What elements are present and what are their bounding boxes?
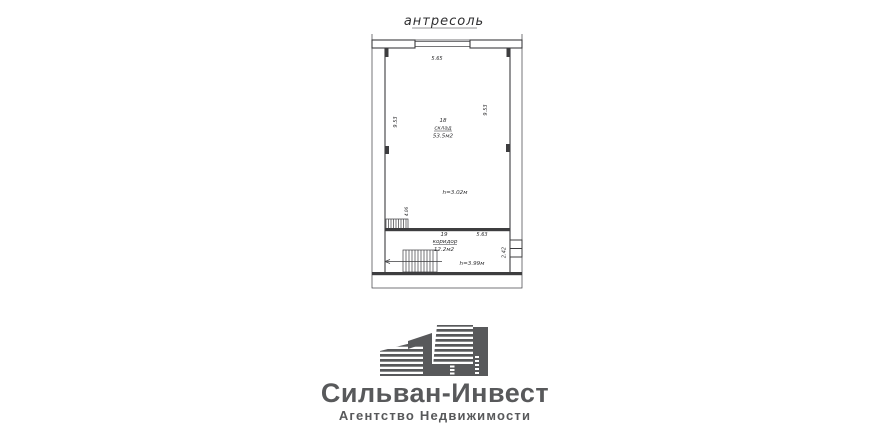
room-19-number: 19 [440, 232, 448, 238]
room-19-area: 12.2м2 [434, 247, 455, 253]
buildings-icon [380, 324, 490, 377]
dim-left-height: 9.53 [393, 116, 399, 127]
pilaster [506, 144, 510, 152]
dim-hatch: 4.06 [404, 207, 409, 217]
agency-logo: Сильван-Инвест Агентство Недвижимости [0, 324, 870, 423]
room-18-name: склад [434, 126, 451, 132]
staircase-treads [406, 250, 433, 272]
ladder-rungs [389, 219, 407, 229]
pilaster [507, 48, 511, 57]
dim-right-height: 9.53 [483, 104, 489, 115]
staircase [385, 250, 442, 272]
floor-plan: антресоль [360, 8, 535, 303]
corridor-door [510, 240, 522, 257]
agency-name: Сильван-Инвест [321, 379, 549, 407]
plan-title: антресоль [404, 14, 484, 29]
bottom-wall [372, 272, 522, 275]
window [415, 42, 470, 47]
room-18-area: 53.5м2 [433, 134, 454, 140]
dim-top-width: 5.65 [431, 56, 442, 62]
dim-corridor-width: 5.63 [476, 232, 487, 238]
agency-tagline: Агентство Недвижимости [339, 408, 531, 423]
dim-entry-depth: 2.42 [502, 247, 508, 258]
room-19-name: коридор [433, 239, 458, 245]
hatch-ladder: 4.06 [386, 207, 409, 229]
top-wall [372, 34, 522, 48]
room-19-height: h=3.99м [460, 261, 486, 267]
room-18-label: 18 склад 53.5м2 h=3.02м [433, 118, 468, 196]
pilaster [385, 48, 389, 57]
room-18-number: 18 [439, 118, 447, 124]
room-18-height: h=3.02м [443, 190, 469, 196]
pilaster [385, 146, 389, 154]
